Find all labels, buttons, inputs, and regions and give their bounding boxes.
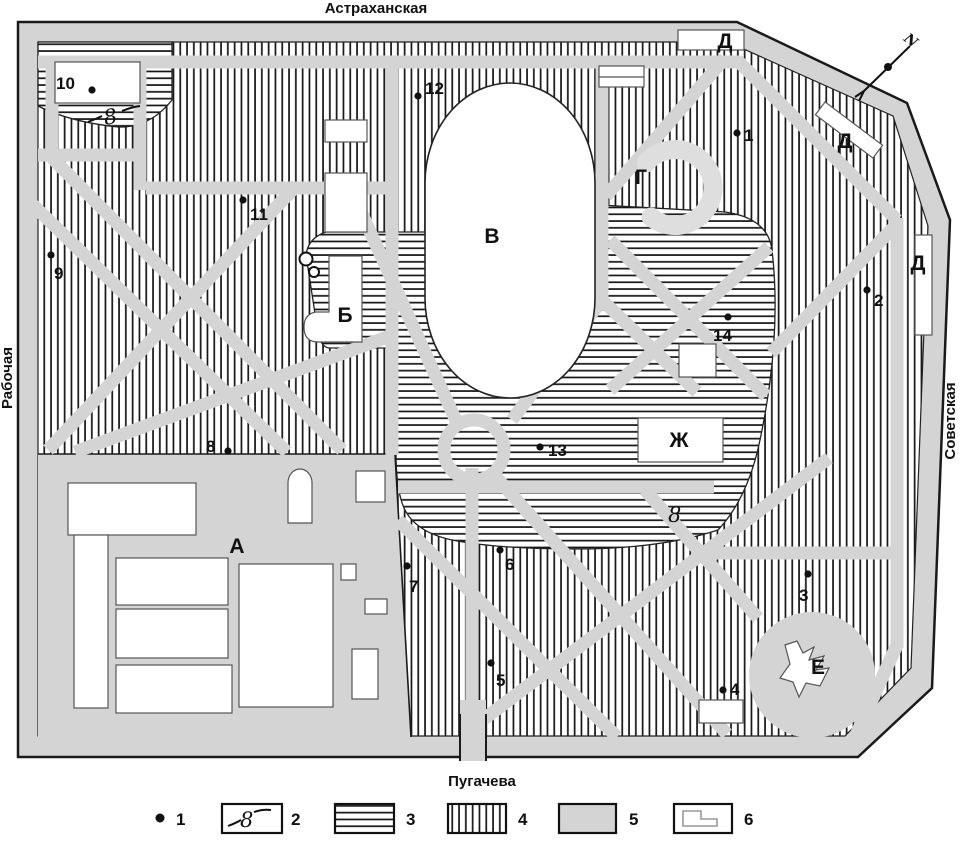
point-dot-10: [88, 86, 95, 93]
point-label-14: 14: [713, 326, 732, 345]
point-dot-8: [224, 447, 231, 454]
area-label-Д: Д: [718, 30, 733, 53]
stream-number-label: 8: [668, 503, 681, 527]
building: [68, 483, 196, 535]
point-label-6: 6: [505, 555, 514, 574]
building: [679, 344, 716, 377]
building: [116, 609, 228, 658]
point-label-10: 10: [56, 74, 75, 93]
building-chapel: [288, 469, 312, 523]
point-label-7: 7: [409, 577, 418, 596]
building: [699, 700, 743, 723]
area-label-А: А: [229, 535, 244, 558]
park-map: N Астраханская Пугачева Рабочая Советска…: [0, 0, 967, 839]
building-d3: [915, 235, 932, 335]
building: [356, 471, 385, 502]
legend-vhatch-symbol: [448, 804, 506, 833]
building: [239, 564, 333, 707]
point-label-9: 9: [54, 264, 63, 283]
legend-label-2: 2: [291, 810, 300, 829]
south-entrance: [460, 700, 486, 761]
street-right: Советская: [942, 382, 959, 459]
point-dot-6: [496, 546, 503, 553]
point-label-8: 8: [206, 437, 215, 456]
building: [116, 558, 228, 605]
legend-label-4: 4: [518, 810, 528, 829]
building: [325, 173, 367, 232]
street-left: Рабочая: [0, 347, 16, 409]
point-label-3: 3: [799, 586, 808, 605]
point-label-4: 4: [730, 680, 740, 699]
building: [325, 120, 367, 142]
legend-gray-symbol: [559, 804, 616, 833]
legend-label-6: 6: [744, 810, 753, 829]
point-dot-12: [414, 92, 421, 99]
area-label-Ж: Ж: [669, 429, 690, 452]
street-top: Астраханская: [325, 0, 428, 17]
legend-label-3: 3: [406, 810, 415, 829]
point-dot-3: [804, 570, 811, 577]
area-label-Е: Е: [811, 656, 825, 679]
point-label-11: 11: [250, 205, 268, 224]
point-dot-11: [239, 196, 246, 203]
legend-stream-number: 8: [240, 808, 253, 832]
point-dot-7: [403, 562, 410, 569]
building: [116, 665, 232, 713]
area-label-Д: Д: [838, 130, 853, 153]
legend-dot-symbol: [156, 814, 165, 823]
area-label-В: В: [484, 225, 499, 248]
point-dot-9: [47, 251, 54, 258]
point-label-13: 13: [548, 441, 567, 460]
area-label-Г: Г: [635, 166, 647, 189]
building: [365, 599, 387, 614]
area-label-Д: Д: [911, 252, 926, 275]
building: [352, 649, 378, 699]
point-dot-5: [487, 659, 494, 666]
legend-label-1: 1: [176, 810, 185, 829]
point-dot-13: [536, 443, 543, 450]
legend-hhatch-symbol: [335, 804, 394, 833]
point-label-12: 12: [425, 79, 444, 98]
stadium-v: [425, 83, 595, 398]
point-label-5: 5: [496, 671, 505, 690]
point-label-2: 2: [874, 291, 883, 310]
point-dot-14: [724, 313, 731, 320]
point-label-1: 1: [744, 126, 753, 145]
point-dot-4: [719, 686, 726, 693]
street-bottom: Пугачева: [448, 773, 516, 790]
point-dot-2: [863, 286, 870, 293]
area-label-Б: Б: [337, 304, 352, 327]
building-d1: [678, 30, 744, 50]
legend-label-5: 5: [629, 810, 638, 829]
point-dot-1: [733, 129, 740, 136]
building: [74, 535, 108, 708]
building: [341, 564, 356, 580]
